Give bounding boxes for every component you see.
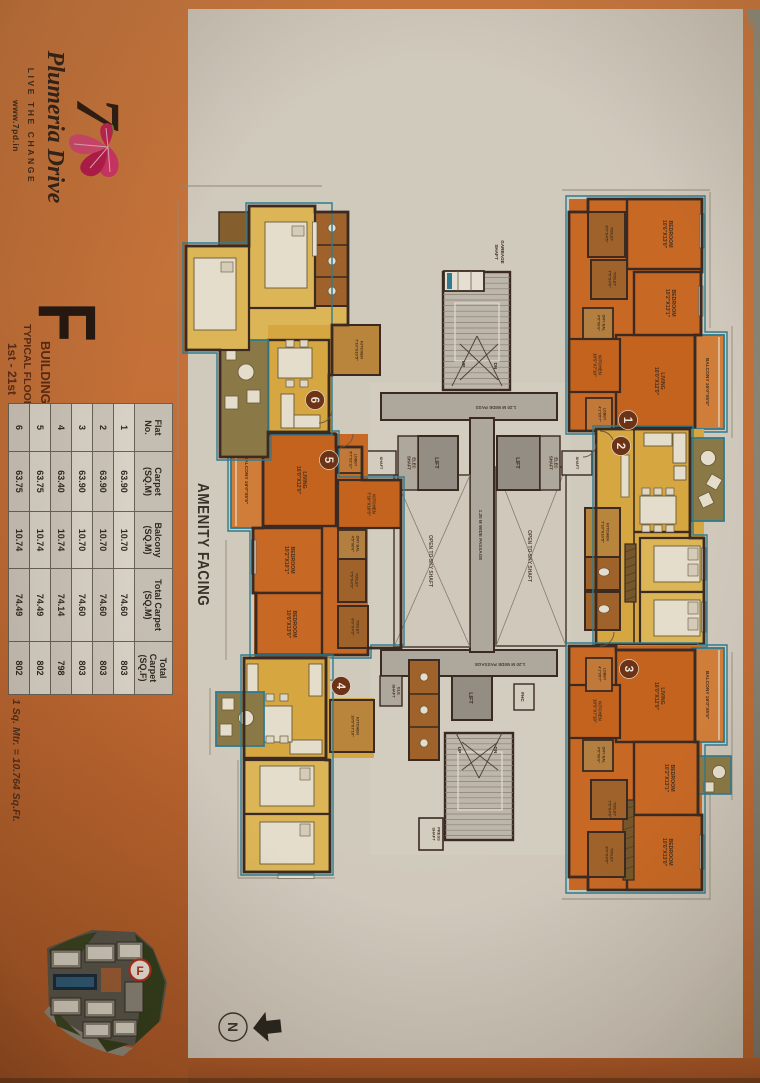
svg-text:7'10"X10'5": 7'10"X10'5" (366, 492, 371, 516)
svg-text:1.20 M WIDE PASSAGE: 1.20 M WIDE PASSAGE (478, 510, 483, 561)
svg-text:TOILET: TOILET (613, 272, 618, 287)
svg-text:10'2"X10'1": 10'2"X10'1" (283, 546, 289, 575)
svg-text:OPEN TO SKY SHAFT: OPEN TO SKY SHAFT (526, 530, 532, 582)
svg-text:KITCHEN: KITCHEN (360, 341, 365, 359)
svg-text:7'10"X10'5": 7'10"X10'5" (355, 339, 360, 361)
svg-text:UP: UP (457, 747, 462, 753)
svg-text:10'6"X13'0": 10'6"X13'0" (661, 220, 667, 249)
svg-text:DRY BAL: DRY BAL (601, 747, 605, 764)
svg-text:4'5"X6'6": 4'5"X6'6" (597, 315, 601, 332)
svg-text:LIVING: LIVING (659, 372, 665, 389)
svg-text:1.20 M WIDE PASS: 1.20 M WIDE PASS (476, 405, 517, 410)
svg-text:KITCHEN: KITCHEN (356, 717, 361, 735)
svg-text:BEDROOM: BEDROOM (670, 289, 676, 316)
svg-text:4'1"X5'7": 4'1"X5'7" (598, 406, 602, 422)
svg-text:DRY BAL: DRY BAL (355, 536, 359, 553)
svg-text:10'5"X7'10": 10'5"X7'10" (351, 715, 356, 737)
svg-text:BEDROOM: BEDROOM (289, 546, 295, 573)
svg-text:10'6"X13'0": 10'6"X13'0" (285, 610, 291, 639)
svg-text:TOILET: TOILET (356, 620, 361, 635)
svg-text:3: 3 (622, 666, 634, 672)
svg-text:7'5"X4'5": 7'5"X4'5" (350, 571, 355, 588)
svg-text:DRY BAL: DRY BAL (601, 315, 605, 332)
svg-text:10'5"X7'10": 10'5"X7'10" (592, 353, 597, 377)
svg-text:ELE: ELE (397, 687, 402, 695)
svg-text:DN: DN (493, 363, 498, 370)
svg-text:SHAFT: SHAFT (432, 827, 437, 841)
svg-text:BEDROOM: BEDROOM (669, 764, 675, 791)
svg-text:FHC: FHC (520, 692, 525, 702)
svg-text:7'5"X4'5": 7'5"X4'5" (608, 800, 613, 817)
svg-text:LIVING: LIVING (301, 471, 307, 488)
svg-text:KITCHEN: KITCHEN (606, 523, 611, 541)
svg-text:SHAFT: SHAFT (494, 244, 499, 260)
svg-text:SHAFT: SHAFT (548, 456, 553, 470)
svg-text:1: 1 (621, 417, 633, 424)
svg-text:16'0"X12'0": 16'0"X12'0" (295, 466, 301, 495)
svg-text:KITCHEN: KITCHEN (372, 494, 377, 514)
svg-text:4: 4 (334, 683, 346, 690)
svg-text:BEDROOM: BEDROOM (667, 838, 673, 865)
svg-text:PRESS: PRESS (437, 827, 442, 841)
svg-text:SHAFT: SHAFT (575, 457, 579, 470)
svg-text:5'7"X3'11": 5'7"X3'11" (349, 451, 353, 469)
svg-text:LOBBY: LOBBY (602, 668, 606, 681)
svg-text:7'5"X4'5": 7'5"X4'5" (608, 270, 613, 287)
svg-text:8'0"X4'5": 8'0"X4'5" (351, 618, 356, 635)
svg-text:SHAFT: SHAFT (406, 456, 411, 470)
svg-text:SHAFT: SHAFT (379, 457, 383, 470)
svg-text:8'0"X4'5": 8'0"X4'5" (605, 225, 610, 242)
svg-text:1.20 M WIDE PASSAGE: 1.20 M WIDE PASSAGE (475, 662, 526, 667)
svg-text:4'1"X5'7": 4'1"X5'7" (598, 666, 602, 682)
svg-text:TOILET: TOILET (610, 227, 615, 242)
svg-text:KITCHEN: KITCHEN (598, 701, 603, 721)
svg-text:LIFT: LIFT (467, 692, 473, 704)
svg-text:BEDROOM: BEDROOM (291, 610, 297, 637)
svg-text:7'10"X10'5": 7'10"X10'5" (601, 521, 606, 543)
svg-text:TOILET: TOILET (613, 802, 618, 817)
svg-text:UP: UP (461, 361, 466, 367)
svg-text:10'6"X13'0": 10'6"X13'0" (661, 838, 667, 867)
svg-text:SHAFT: SHAFT (392, 684, 397, 698)
svg-text:5: 5 (322, 457, 334, 464)
svg-text:GARBAGE: GARBAGE (500, 240, 505, 263)
svg-text:ELEC: ELEC (412, 457, 417, 468)
svg-text:LOBBY: LOBBY (602, 408, 606, 421)
svg-text:16'0"X12'0": 16'0"X12'0" (653, 367, 659, 396)
svg-text:4'5"X6'6": 4'5"X6'6" (351, 536, 355, 553)
svg-text:BEDROOM: BEDROOM (667, 220, 673, 247)
svg-text:ELEC: ELEC (554, 457, 559, 468)
svg-text:LIVING: LIVING (659, 687, 665, 704)
svg-text:DN: DN (493, 747, 498, 754)
svg-text:KITCHEN: KITCHEN (598, 355, 603, 375)
svg-text:4'5"X6'6": 4'5"X6'6" (597, 747, 601, 764)
svg-text:TOILET: TOILET (610, 848, 615, 863)
svg-text:LIFT: LIFT (514, 457, 520, 469)
svg-text:2: 2 (614, 443, 626, 449)
svg-text:8'0"X4'5": 8'0"X4'5" (605, 846, 610, 863)
svg-text:LOBBY: LOBBY (353, 454, 357, 467)
svg-text:6: 6 (308, 397, 320, 403)
svg-text:TOILET: TOILET (355, 573, 360, 588)
svg-text:OPEN TO SKY SHAFT: OPEN TO SKY SHAFT (427, 535, 433, 587)
svg-text:10'2"X13'1": 10'2"X13'1" (664, 289, 670, 318)
svg-text:LIFT: LIFT (433, 457, 439, 469)
svg-text:16'0"X12'0": 16'0"X12'0" (653, 682, 659, 711)
svg-text:10'2"X13'1": 10'2"X13'1" (663, 764, 669, 793)
svg-text:10'5"X7'10": 10'5"X7'10" (592, 699, 597, 723)
